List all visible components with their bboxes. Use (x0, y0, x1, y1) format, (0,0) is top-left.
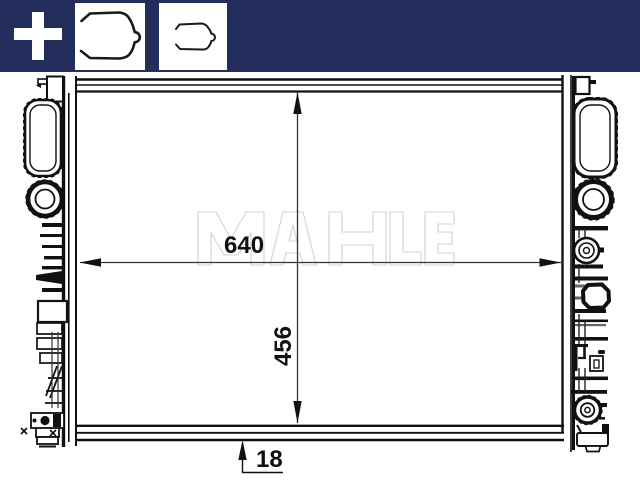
svg-text:456: 456 (270, 326, 297, 366)
svg-text:18: 18 (256, 446, 283, 473)
svg-text:640: 640 (224, 232, 264, 259)
